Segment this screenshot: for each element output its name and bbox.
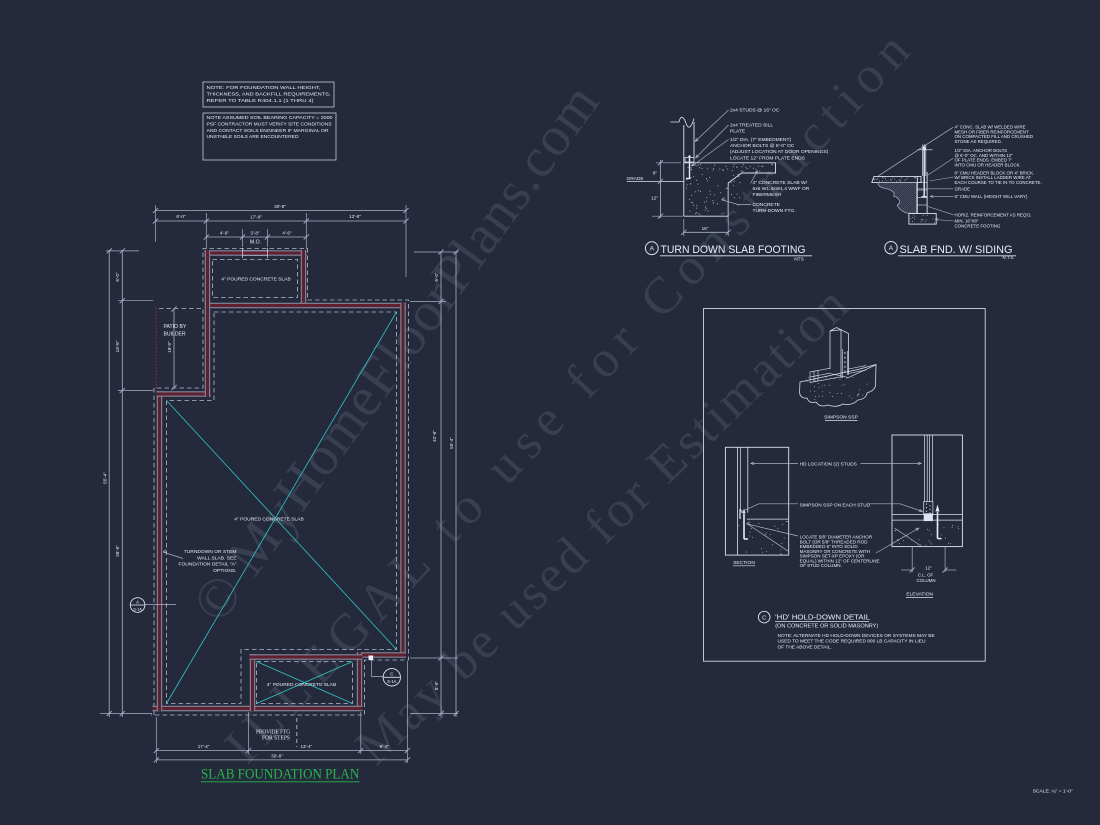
svg-text:12": 12"	[651, 196, 658, 201]
svg-text:1/2" DIA. (7" EMBEDMENT): 1/2" DIA. (7" EMBEDMENT)	[730, 137, 791, 143]
svg-text:8'-8": 8'-8"	[434, 681, 439, 691]
svg-text:CONCRETE: CONCRETE	[753, 202, 781, 208]
svg-text:EACH COURSE TO TIE IN TO CONCR: EACH COURSE TO TIE IN TO CONCRETE.	[955, 180, 1042, 185]
svg-text:C: C	[390, 672, 394, 677]
svg-text:TURN-DOWN FTG.: TURN-DOWN FTG.	[753, 208, 796, 214]
svg-text:4'-6": 4'-6"	[282, 231, 292, 236]
svg-text:OF THE ABOVE DETAIL.: OF THE ABOVE DETAIL.	[778, 644, 832, 650]
svg-text:18'-0": 18'-0"	[167, 341, 172, 353]
svg-text:USED TO MEET THE CODE REQUIRED: USED TO MEET THE CODE REQUIRED 800 LB CA…	[778, 639, 926, 645]
svg-text:NOTE: FOR FOUNDATION WALL HEIG: NOTE: FOR FOUNDATION WALL HEIGHT,	[207, 85, 321, 91]
svg-text:OF STUD COLUMN.: OF STUD COLUMN.	[800, 563, 842, 568]
svg-text:(ADJUST LOCATION AT DOOR OPENI: (ADJUST LOCATION AT DOOR OPENINGS)	[730, 149, 829, 155]
svg-text:17'-4": 17'-4"	[198, 744, 210, 749]
svg-text:8": 8"	[653, 171, 658, 176]
svg-text:REFER TO TABLE R404.1.1 (1 THR: REFER TO TABLE R404.1.1 (1 THRU 4)	[207, 98, 314, 104]
svg-text:3'-8": 3'-8"	[250, 231, 260, 236]
svg-text:PLATE: PLATE	[730, 129, 746, 135]
svg-text:6'-0": 6'-0"	[115, 272, 120, 282]
svg-text:GRADE: GRADE	[955, 186, 971, 191]
svg-text:4" POURED CONCRETE SLAB: 4" POURED CONCRETE SLAB	[267, 682, 336, 688]
svg-text:HD LOCATION (2) STUDS: HD LOCATION (2) STUDS	[800, 461, 857, 467]
svg-text:2x4 TREATED SILL: 2x4 TREATED SILL	[730, 123, 773, 129]
svg-text:SIMPSON SSP: SIMPSON SSP	[824, 415, 858, 421]
svg-text:COLUMN: COLUMN	[916, 578, 935, 583]
svg-text:FIBERMESH: FIBERMESH	[753, 192, 782, 198]
svg-text:18'-8": 18'-8"	[115, 340, 120, 352]
svg-text:NOTE ASSUMED SOIL BEARING CAPA: NOTE ASSUMED SOIL BEARING CAPACITY = 200…	[207, 115, 333, 121]
svg-text:UNSTABLE SOILS ARE ENCOUNTERED: UNSTABLE SOILS ARE ENCOUNTERED	[207, 134, 299, 140]
svg-text:HORIZ. REINFORCEMENT AS REQ'D.: HORIZ. REINFORCEMENT AS REQ'D.	[955, 212, 1032, 217]
svg-text:'HD' HOLD-DOWN DETAIL: 'HD' HOLD-DOWN DETAIL	[775, 613, 870, 622]
svg-text:TURN DOWN SLAB FOOTING: TURN DOWN SLAB FOOTING	[661, 244, 806, 256]
svg-text:ANCHOR BOLTS @ 6'-0" OC: ANCHOR BOLTS @ 6'-0" OC	[730, 143, 795, 149]
svg-text:A: A	[889, 245, 894, 252]
svg-text:13'-4": 13'-4"	[300, 744, 312, 749]
svg-text:4'-6": 4'-6"	[220, 231, 230, 236]
svg-text:12": 12"	[925, 566, 932, 571]
svg-text:17'-8": 17'-8"	[250, 215, 262, 220]
svg-text:A: A	[650, 246, 655, 253]
svg-text:4" POURED CONCRETE SLAB: 4" POURED CONCRETE SLAB	[234, 516, 303, 522]
svg-text:(ON CONCRETE OR SOLID MASONRY): (ON CONCRETE OR SOLID MASONRY)	[775, 624, 878, 630]
svg-text:C: C	[762, 615, 766, 621]
svg-text:M.O.: M.O.	[250, 240, 261, 246]
svg-text:SLAB FND. W/ SIDING: SLAB FND. W/ SIDING	[900, 244, 1013, 256]
svg-text:9'-4": 9'-4"	[380, 744, 390, 749]
svg-text:S-1A: S-1A	[387, 679, 397, 684]
svg-text:PATIO BY: PATIO BY	[164, 324, 187, 330]
svg-text:4" POURED CONCRETE SLAB: 4" POURED CONCRETE SLAB	[221, 276, 290, 282]
svg-text:INTO CMU OR HEADER BLOCK.: INTO CMU OR HEADER BLOCK.	[955, 162, 1021, 167]
svg-text:12'-8": 12'-8"	[349, 214, 361, 219]
svg-text:6x6 W1.4xW1.4 WWF OR: 6x6 W1.4xW1.4 WWF OR	[753, 186, 810, 192]
svg-text:BUILDER: BUILDER	[164, 332, 186, 338]
svg-text:CONCRETE FOOTING: CONCRETE FOOTING	[955, 223, 1001, 228]
svg-text:GRADE: GRADE	[626, 176, 643, 182]
svg-text:WALL SLAB. SEE: WALL SLAB. SEE	[197, 555, 237, 561]
svg-text:NTS: NTS	[794, 257, 804, 263]
svg-text:AND CONTACT SOILS ENGINEER IF: AND CONTACT SOILS ENGINEER IF MARGINAL O…	[207, 128, 329, 134]
svg-text:STONE AS REQUIRED.: STONE AS REQUIRED.	[955, 139, 1003, 144]
svg-text:4" CONCRETE SLAB W/: 4" CONCRETE SLAB W/	[753, 180, 808, 186]
svg-text:NOTE: ALTERNATE HD HOLD-DOWN D: NOTE: ALTERNATE HD HOLD-DOWN DEVICES OR …	[778, 633, 935, 639]
svg-text:SECTION: SECTION	[733, 560, 755, 566]
svg-text:TURNDOWN OR STEM: TURNDOWN OR STEM	[184, 549, 237, 555]
svg-text:30'-8": 30'-8"	[274, 204, 286, 209]
svg-text:ELEVATION: ELEVATION	[906, 591, 933, 597]
svg-text:THICKNESS, AND BACKFILL REQUIR: THICKNESS, AND BACKFILL REQUIREMENTS,	[207, 92, 331, 98]
svg-text:SLAB FOUNDATION PLAN: SLAB FOUNDATION PLAN	[201, 766, 359, 783]
svg-text:55'-4": 55'-4"	[103, 472, 108, 484]
svg-text:FOR STEPS: FOR STEPS	[262, 736, 290, 742]
svg-text:30'-8": 30'-8"	[271, 753, 283, 758]
svg-text:16": 16"	[702, 226, 709, 231]
svg-text:8" CMU WALL (HEIGHT WILL VARY): 8" CMU WALL (HEIGHT WILL VARY)	[955, 194, 1028, 199]
svg-text:55'-4": 55'-4"	[449, 437, 454, 449]
svg-text:42'-8": 42'-8"	[432, 430, 437, 442]
svg-text:N.T.S.: N.T.S.	[1003, 255, 1015, 260]
svg-text:FOUNDATION DETAIL "A": FOUNDATION DETAIL "A"	[179, 562, 237, 568]
svg-text:6'-0": 6'-0"	[176, 214, 186, 219]
svg-text:SIMPSON SSP ON EACH STUD: SIMPSON SSP ON EACH STUD	[800, 503, 871, 509]
svg-text:38'-8": 38'-8"	[115, 545, 120, 557]
svg-text:S-1A: S-1A	[133, 607, 142, 611]
svg-text:6'-0": 6'-0"	[434, 272, 439, 282]
svg-text:PSF CONTRACTOR MUST VERIFY SIT: PSF CONTRACTOR MUST VERIFY SITE CONDITIO…	[207, 121, 333, 127]
svg-text:LOCATE 12" FROM PLATE ENDS: LOCATE 12" FROM PLATE ENDS	[730, 155, 806, 161]
svg-text:OPTIONS.: OPTIONS.	[213, 568, 236, 574]
svg-text:SCALE: ¼" = 1'-0": SCALE: ¼" = 1'-0"	[1033, 788, 1073, 794]
svg-text:A: A	[136, 599, 139, 604]
svg-text:2x4 STUDS @ 16" OC: 2x4 STUDS @ 16" OC	[730, 108, 780, 114]
